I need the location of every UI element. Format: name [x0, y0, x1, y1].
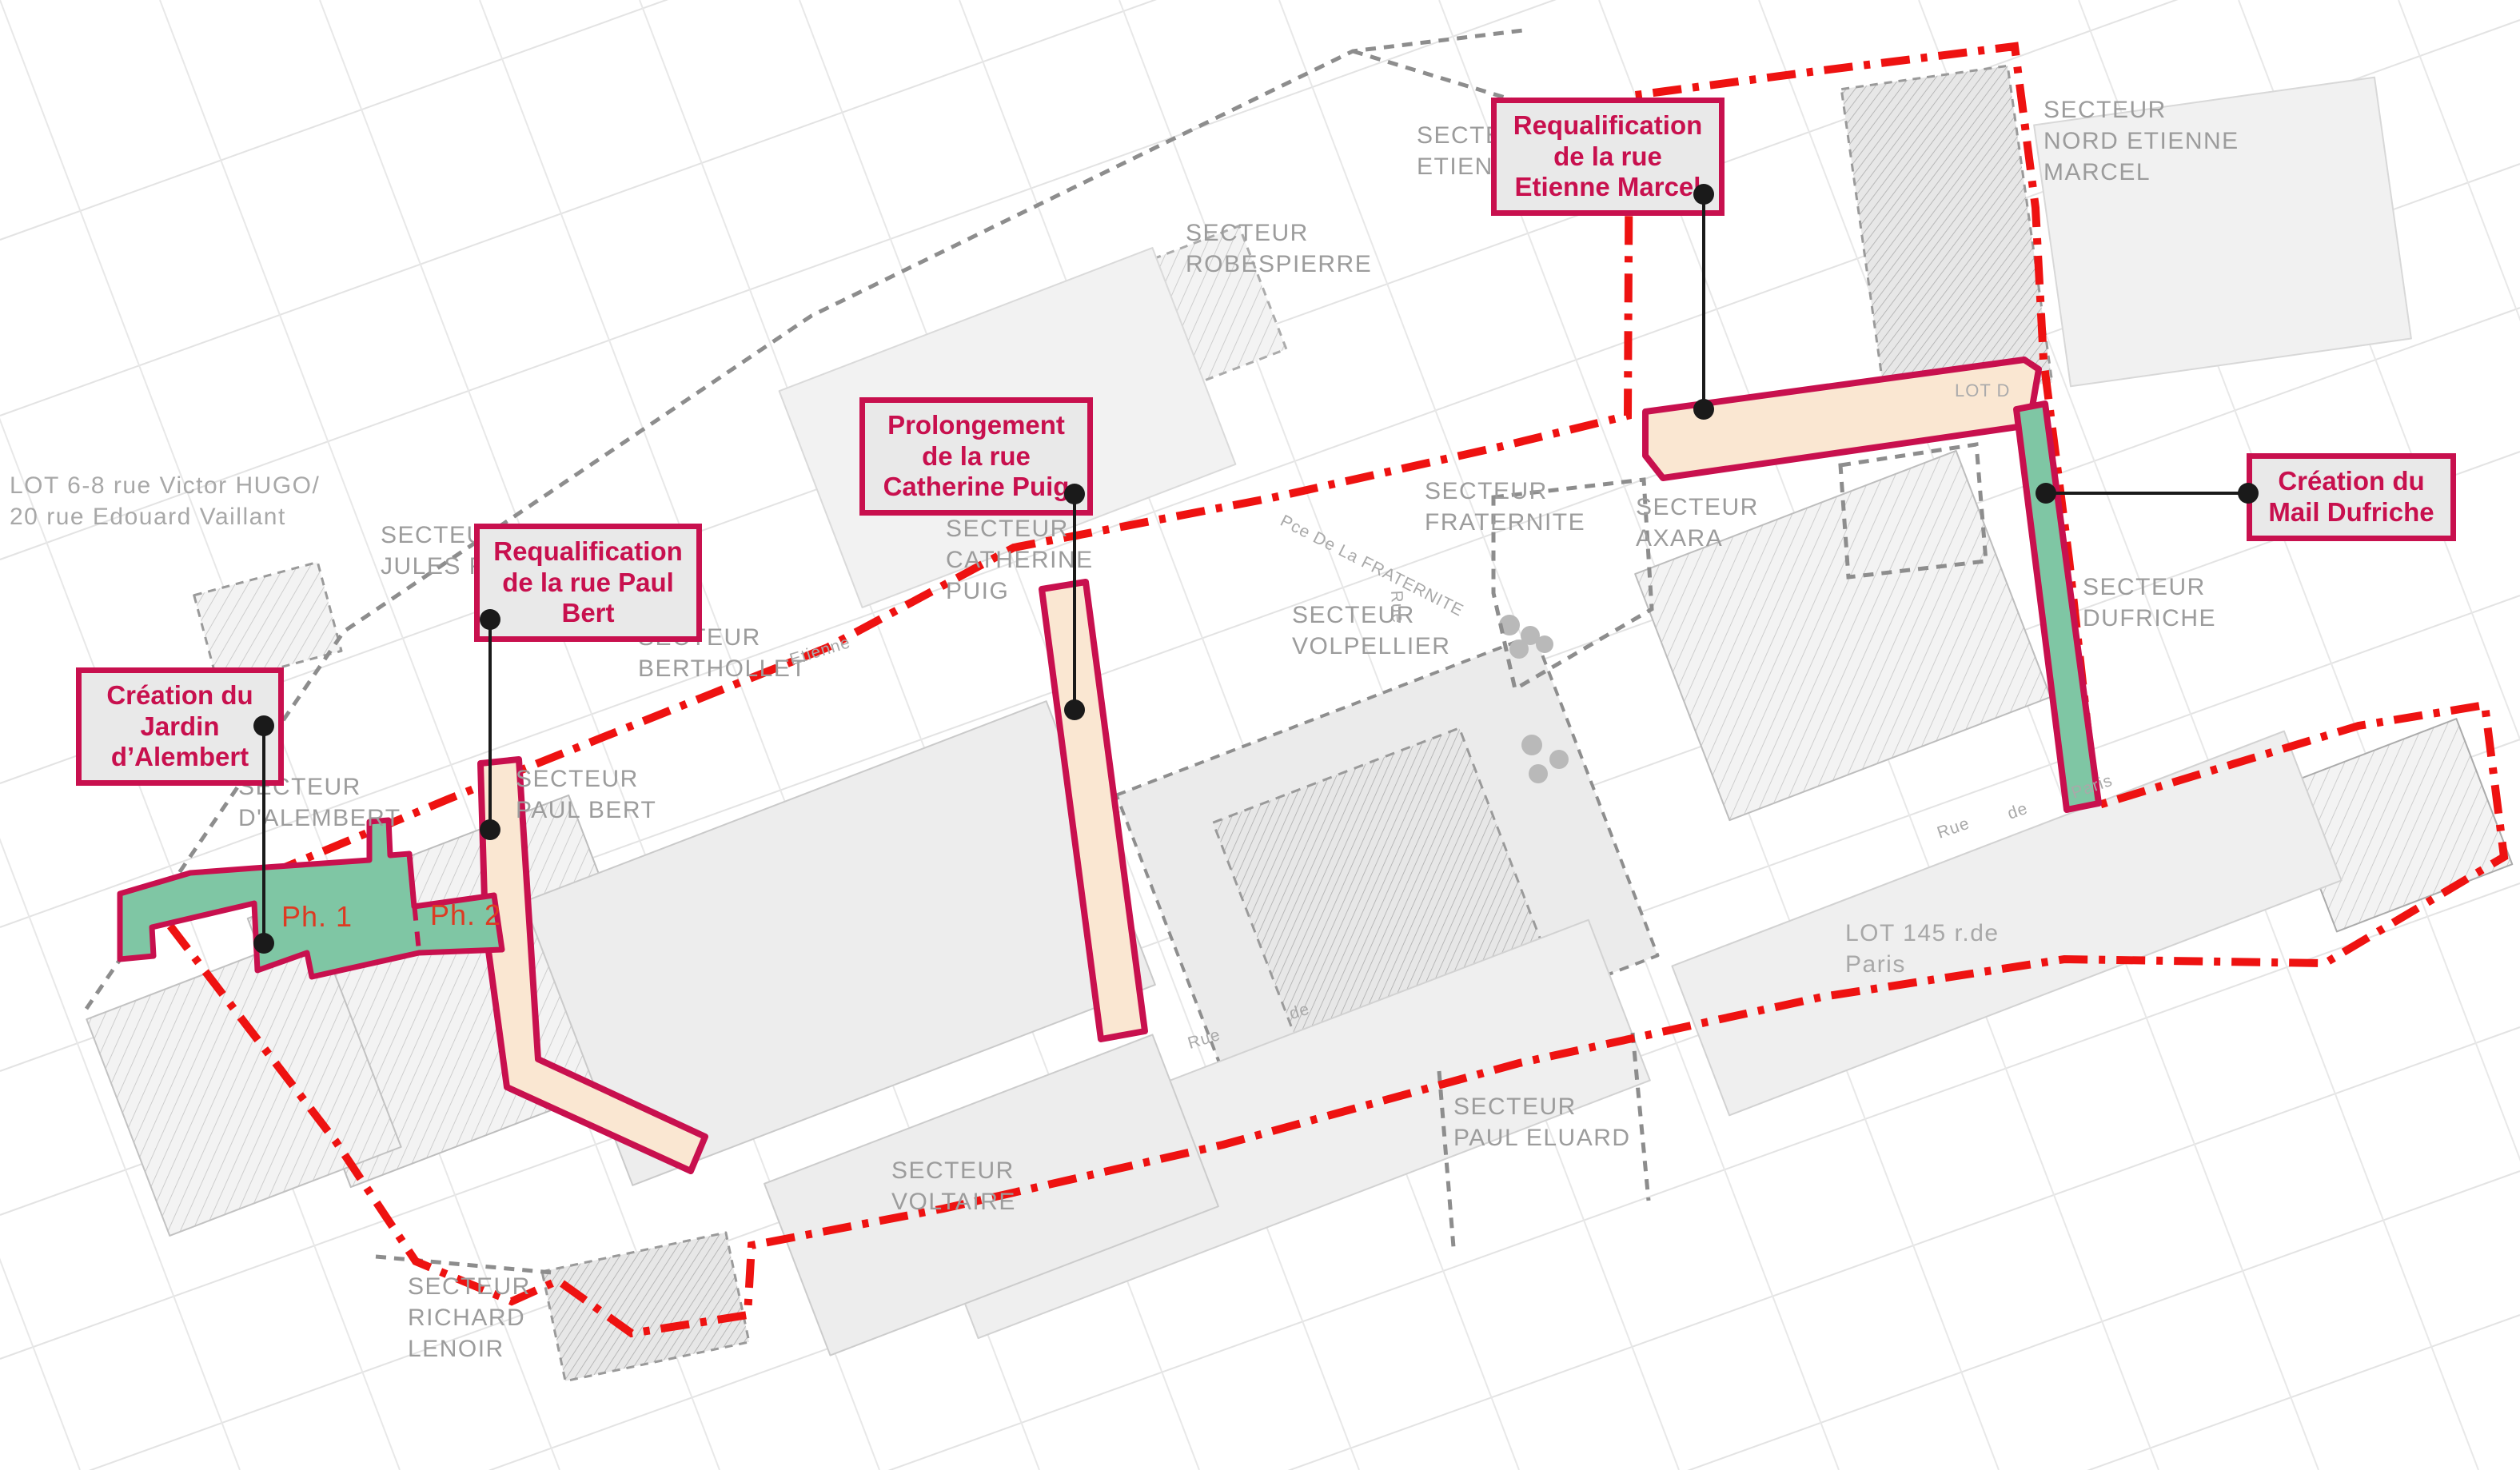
- sector-label-dufriche: SECTEUR DUFRICHE: [2083, 572, 2216, 634]
- corridor-rue-etienne-marcel: [1645, 360, 2039, 478]
- callout-mail-dufriche: Création du Mail Dufriche: [2247, 453, 2456, 541]
- sector-label-nord-etienne-marcel: SECTEUR NORD ETIENNE MARCEL: [2044, 94, 2239, 188]
- sector-label-catherine-puig: SECTEUR CATHERINE PUIG: [946, 513, 1094, 607]
- urban-plan-map: LOT 6-8 rue Victor HUGO/ 20 rue Edouard …: [0, 0, 2520, 1470]
- sector-label-lot-145: LOT 145 r.de Paris: [1845, 918, 2000, 980]
- phase-1-label: Ph. 1: [281, 900, 353, 934]
- sector-label-fraternite: SECTEUR FRATERNITE: [1425, 476, 1585, 538]
- sector-label-robespierre: SECTEUR ROBESPIERRE: [1186, 217, 1372, 280]
- sector-label-volpellier: SECTEUR VOLPELLIER: [1292, 600, 1450, 662]
- callout-rue-catherine-puig-text: Prolongement de la rue Catherine Puig: [883, 410, 1070, 504]
- callout-mail-dufriche-text: Création du Mail Dufriche: [2268, 466, 2434, 528]
- sector-label-paul-eluard: SECTEUR PAUL ELUARD: [1453, 1091, 1631, 1153]
- callout-rue-etienne-marcel: Requalification de la rue Etienne Marcel: [1491, 98, 1725, 216]
- phase-2-label: Ph. 2: [430, 898, 501, 932]
- sector-label-voltaire: SECTEUR VOLTAIRE: [891, 1155, 1016, 1217]
- callout-rue-catherine-puig: Prolongement de la rue Catherine Puig: [859, 397, 1093, 516]
- sector-label-lot-d: LOT D: [1955, 380, 2010, 403]
- callout-rue-paul-bert: Requalification de la rue Paul Bert: [474, 524, 702, 642]
- callout-jardin-alembert-text: Création du Jardin d’Alembert: [106, 680, 253, 774]
- callout-rue-paul-bert-text: Requalification de la rue Paul Bert: [493, 536, 683, 630]
- sector-label-lot-victor-hugo: LOT 6-8 rue Victor HUGO/ 20 rue Edouard …: [10, 470, 320, 532]
- sector-label-richard-lenoir: SECTEUR RICHARD LENOIR: [408, 1271, 531, 1364]
- street-label-rue-vertical: Rue: [1386, 590, 1407, 624]
- sector-label-axara: SECTEUR AXARA: [1636, 492, 1759, 554]
- hatched-block-richard-lenoir: [542, 1233, 749, 1381]
- callout-jardin-alembert: Création du Jardin d’Alembert: [76, 667, 284, 786]
- callout-rue-etienne-marcel-text: Requalification de la rue Etienne Marcel: [1513, 110, 1703, 204]
- sector-label-paul-bert: SECTEUR PAUL BERT: [516, 763, 656, 826]
- hatched-block-northeast: [1841, 66, 2052, 405]
